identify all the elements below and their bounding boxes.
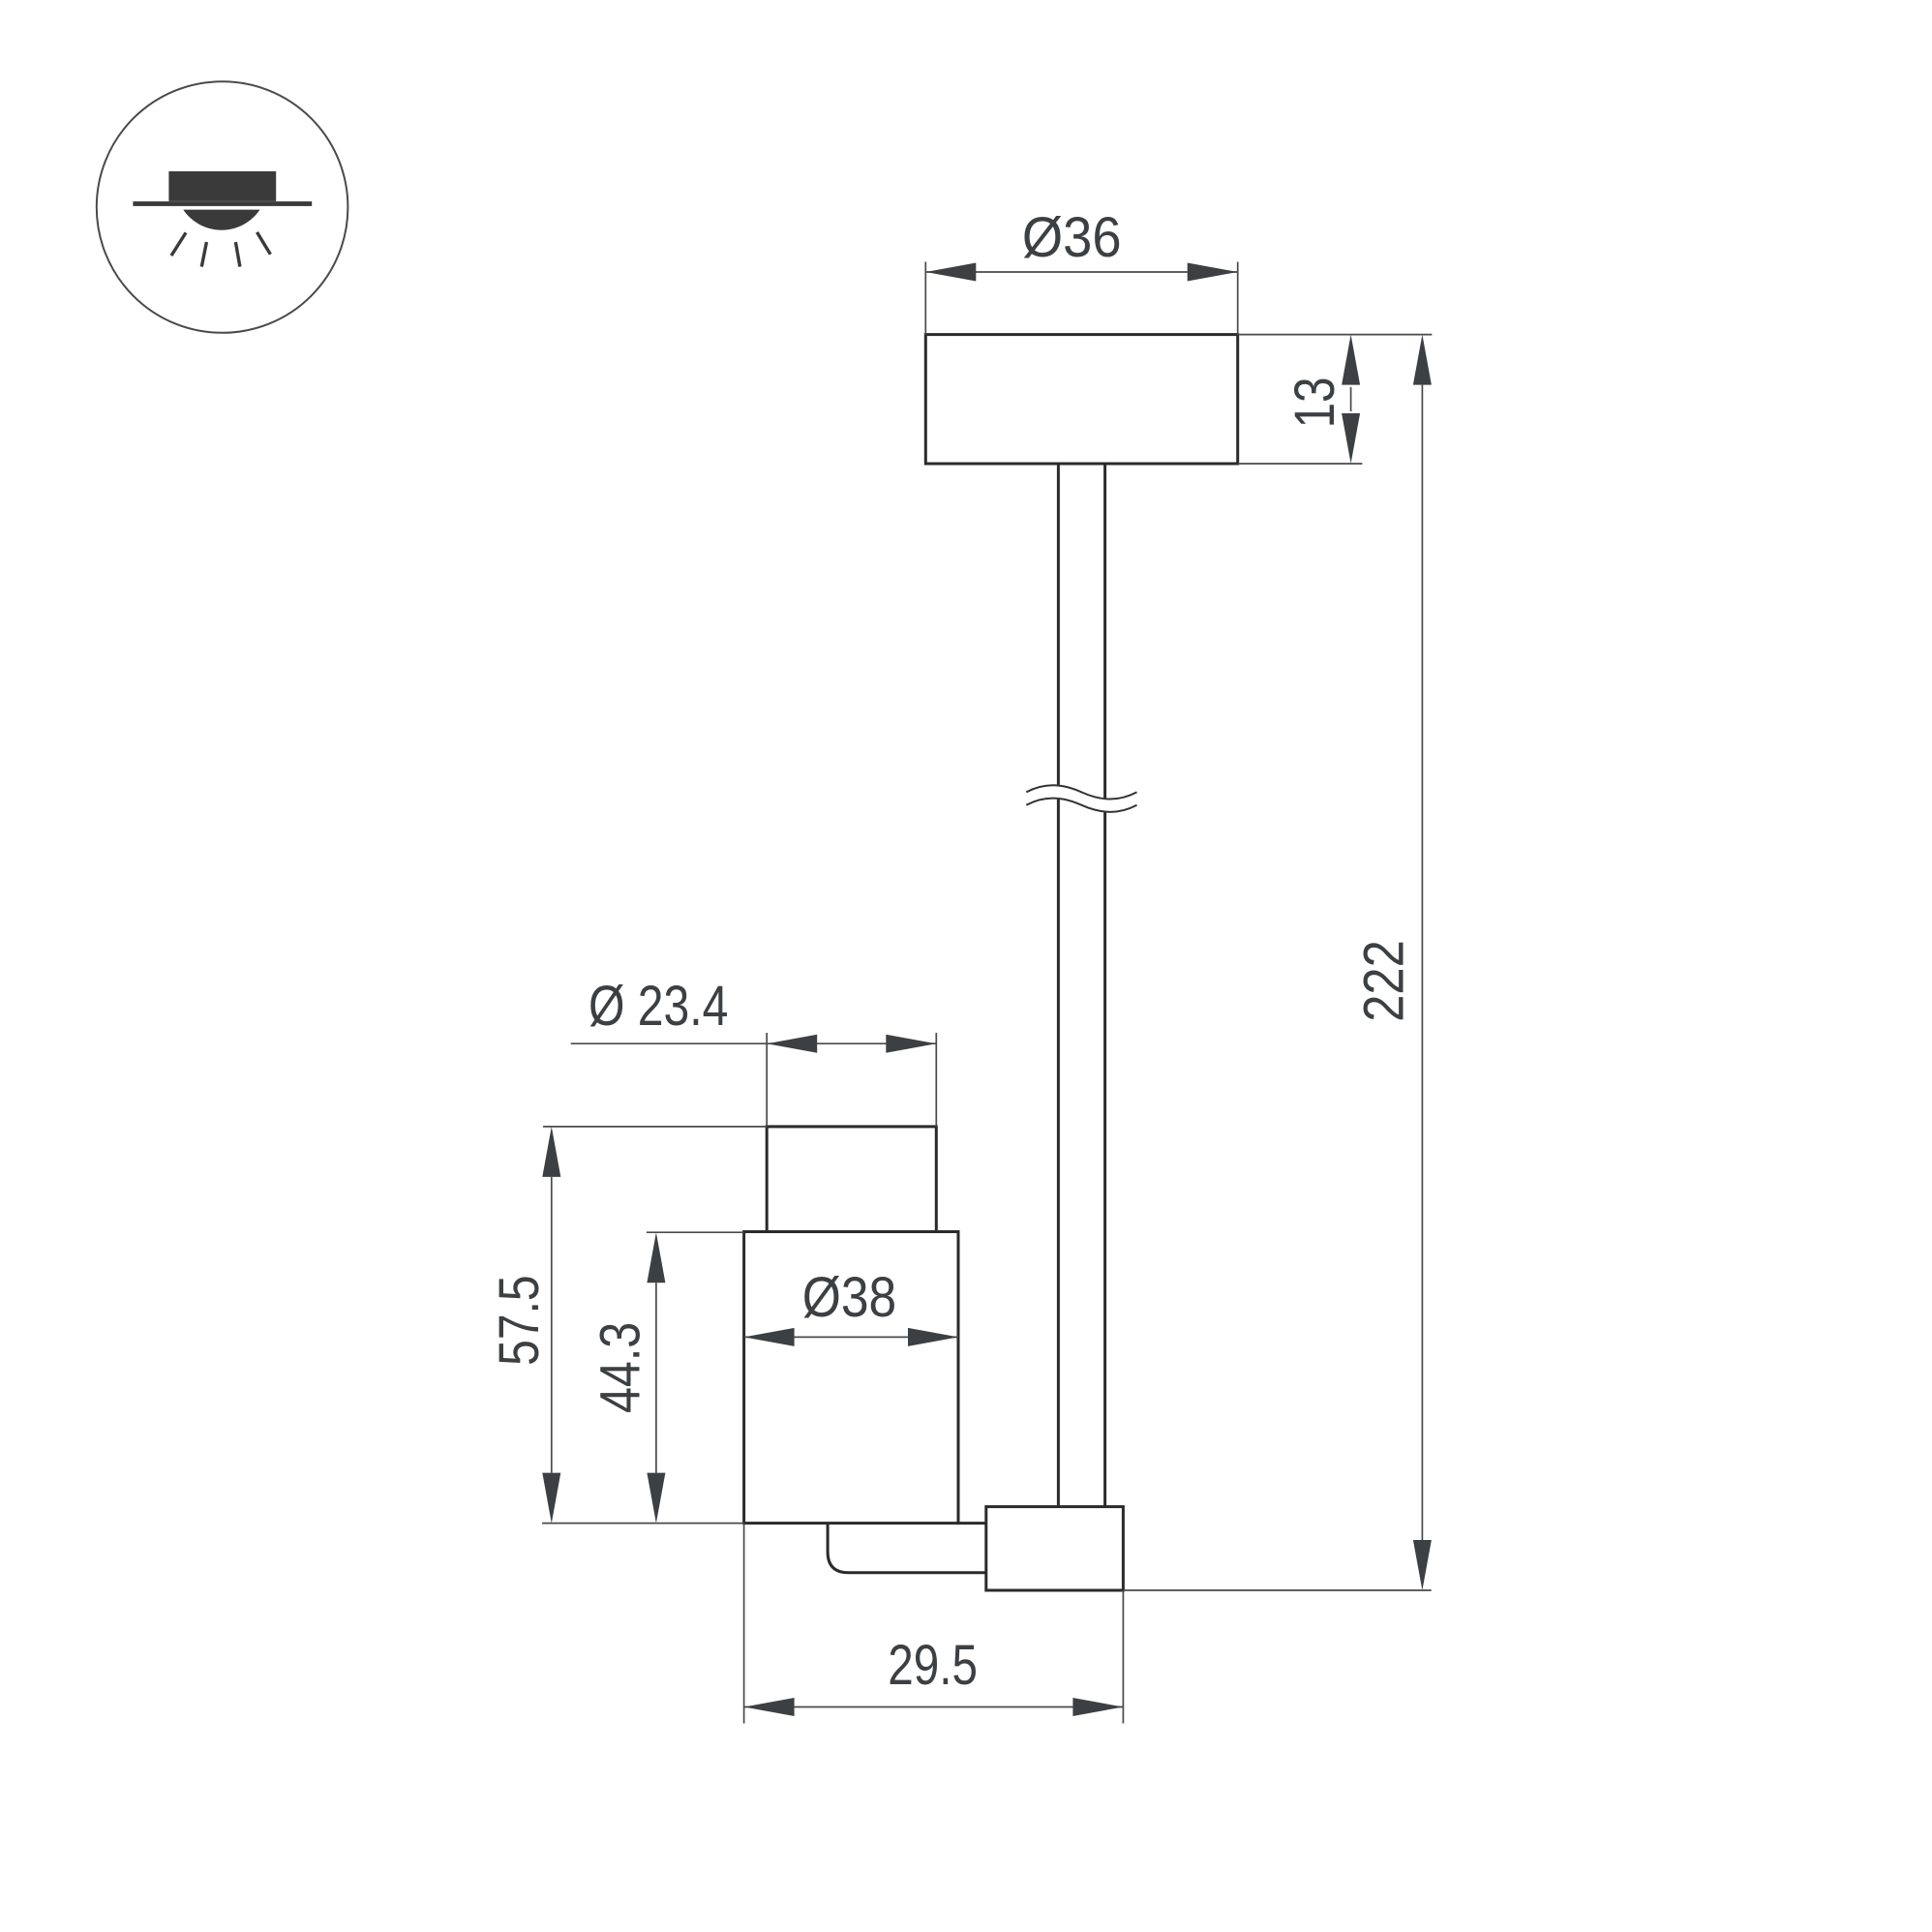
svg-text:13: 13	[1284, 377, 1347, 429]
svg-text:Ø 23.4: Ø 23.4	[589, 976, 728, 1038]
svg-text:222: 222	[1352, 940, 1415, 1022]
svg-text:57.5: 57.5	[489, 1275, 551, 1365]
svg-text:44.3: 44.3	[589, 1322, 651, 1413]
svg-text:Ø36: Ø36	[1022, 205, 1122, 268]
svg-text:Ø38: Ø38	[802, 1265, 896, 1329]
svg-text:29.5: 29.5	[888, 1635, 978, 1697]
